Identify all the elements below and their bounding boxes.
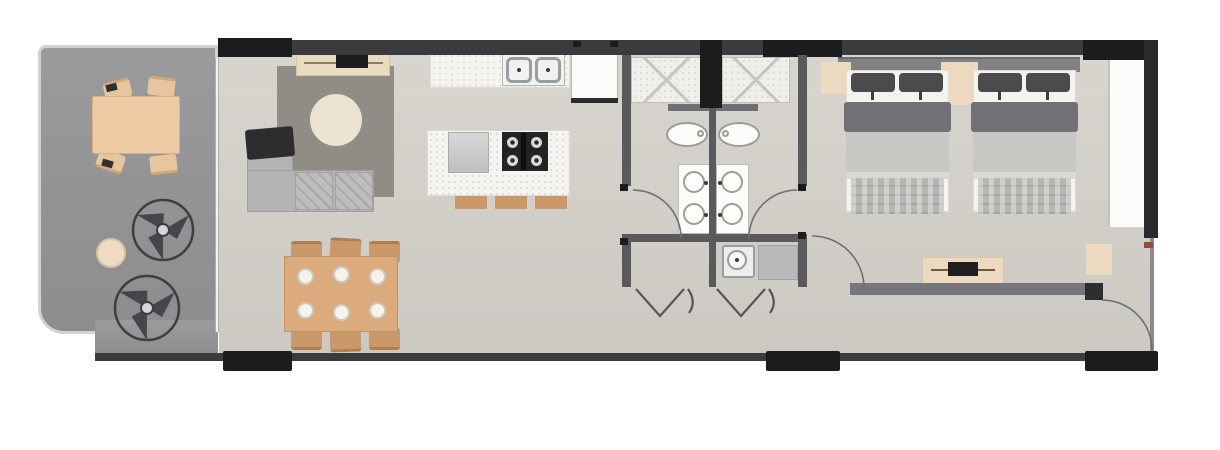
- plate-icon: [369, 268, 386, 285]
- bath-bottom-wall: [622, 234, 807, 242]
- frame-tick: [573, 41, 581, 47]
- pillow-tassel: [1046, 91, 1049, 100]
- bed: [844, 70, 951, 220]
- pillow-tassel: [871, 91, 874, 100]
- bar-stool: [455, 196, 487, 209]
- throw-blanket: [245, 126, 295, 160]
- burner-icon: [507, 155, 518, 166]
- blanket: [846, 132, 949, 174]
- vanity-basin: [683, 171, 705, 193]
- bar-stool: [495, 196, 527, 209]
- round-ottoman: [310, 94, 362, 146]
- pillow: [978, 73, 1022, 92]
- door-hinge: [798, 184, 806, 191]
- toilet-flush-dot: [722, 130, 729, 137]
- faucet-dot: [704, 181, 708, 185]
- bath-wall-mid: [709, 108, 716, 287]
- plate-icon: [333, 266, 350, 283]
- bedroom-bottom-wall: [850, 283, 1085, 295]
- plate-icon: [297, 302, 314, 319]
- vanity-basin: [683, 203, 705, 225]
- blanket-fold: [971, 102, 1078, 132]
- bath-wall-left: [622, 240, 631, 287]
- vanity-basin: [721, 203, 743, 225]
- bath-wall-left: [622, 55, 631, 186]
- bottom-wall-black: [766, 351, 840, 371]
- faucet-dot: [546, 68, 550, 72]
- bedroom-wall-end: [1085, 283, 1103, 300]
- pillow-tassel: [919, 91, 922, 100]
- blanket-fold: [844, 102, 951, 132]
- top-wall: [218, 40, 1158, 55]
- floor-plan: [0, 0, 1220, 450]
- pillow: [899, 73, 943, 92]
- bed: [971, 70, 1078, 220]
- door-hinge: [620, 238, 628, 245]
- door-hinge: [798, 232, 806, 239]
- faucet-dot: [517, 68, 521, 72]
- shower-partition-wall: [700, 40, 722, 108]
- bar-stool: [535, 196, 567, 209]
- cooktop-strip: [521, 133, 526, 170]
- tv-icon: [948, 262, 978, 276]
- wardrobe: [1108, 60, 1144, 228]
- pillow: [1026, 73, 1070, 92]
- burner-icon: [531, 137, 542, 148]
- island-basin: [448, 132, 489, 173]
- outdoor-chair: [149, 154, 178, 176]
- door-hinge: [620, 184, 628, 191]
- washer-dial: [735, 258, 739, 262]
- plate-icon: [297, 268, 314, 285]
- sofa-cushion: [295, 172, 333, 210]
- top-wall-black: [218, 38, 292, 57]
- faucet-dot: [718, 181, 722, 185]
- pillow: [851, 73, 895, 92]
- toilet-flush-dot: [697, 130, 704, 137]
- foot-throw: [851, 178, 944, 214]
- blanket: [973, 132, 1076, 174]
- burner-icon: [507, 137, 518, 148]
- bottom-wall-black: [1085, 351, 1158, 371]
- plate-icon: [333, 304, 350, 321]
- door-stop-mark: [1144, 242, 1153, 248]
- plate-icon: [369, 302, 386, 319]
- laundry-counter: [758, 245, 798, 280]
- refrigerator: [571, 50, 618, 103]
- refrigerator-bottom-edge: [571, 98, 618, 103]
- shower-left: [631, 57, 702, 103]
- bath-wall-right: [798, 55, 807, 186]
- sofa-cushion: [335, 172, 373, 210]
- planter-pot: [96, 238, 126, 268]
- bottom-wall-black: [223, 351, 292, 371]
- outdoor-chair: [147, 75, 176, 97]
- bath-wall-right: [798, 236, 807, 287]
- vanity-basin: [721, 171, 743, 193]
- pillow-tassel: [998, 91, 1001, 100]
- right-wall-thin: [1150, 238, 1154, 352]
- faucet-dot: [718, 213, 722, 217]
- dining-chair: [330, 329, 362, 352]
- foot-throw: [978, 178, 1071, 214]
- outdoor-dining-table: [92, 96, 180, 154]
- faucet-dot: [704, 213, 708, 217]
- shower-right: [722, 57, 790, 103]
- right-wall: [1144, 40, 1158, 238]
- bench: [1086, 244, 1112, 275]
- balcony-floor-extension: [95, 320, 218, 355]
- tv-icon: [336, 55, 368, 68]
- frame-tick: [610, 41, 618, 47]
- burner-icon: [531, 155, 542, 166]
